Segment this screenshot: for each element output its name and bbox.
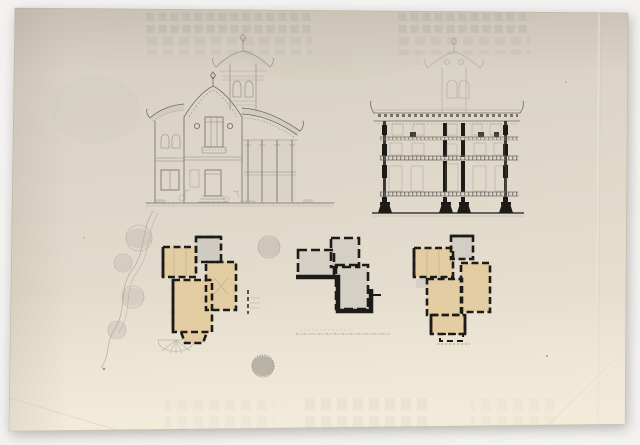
ghost-battlements-bottom (165, 396, 560, 430)
ghost-battlements-top-right (398, 12, 530, 55)
ghost-battlements-top-left (146, 12, 312, 55)
fox-spot (103, 368, 105, 370)
scanned-drawing (0, 0, 640, 445)
